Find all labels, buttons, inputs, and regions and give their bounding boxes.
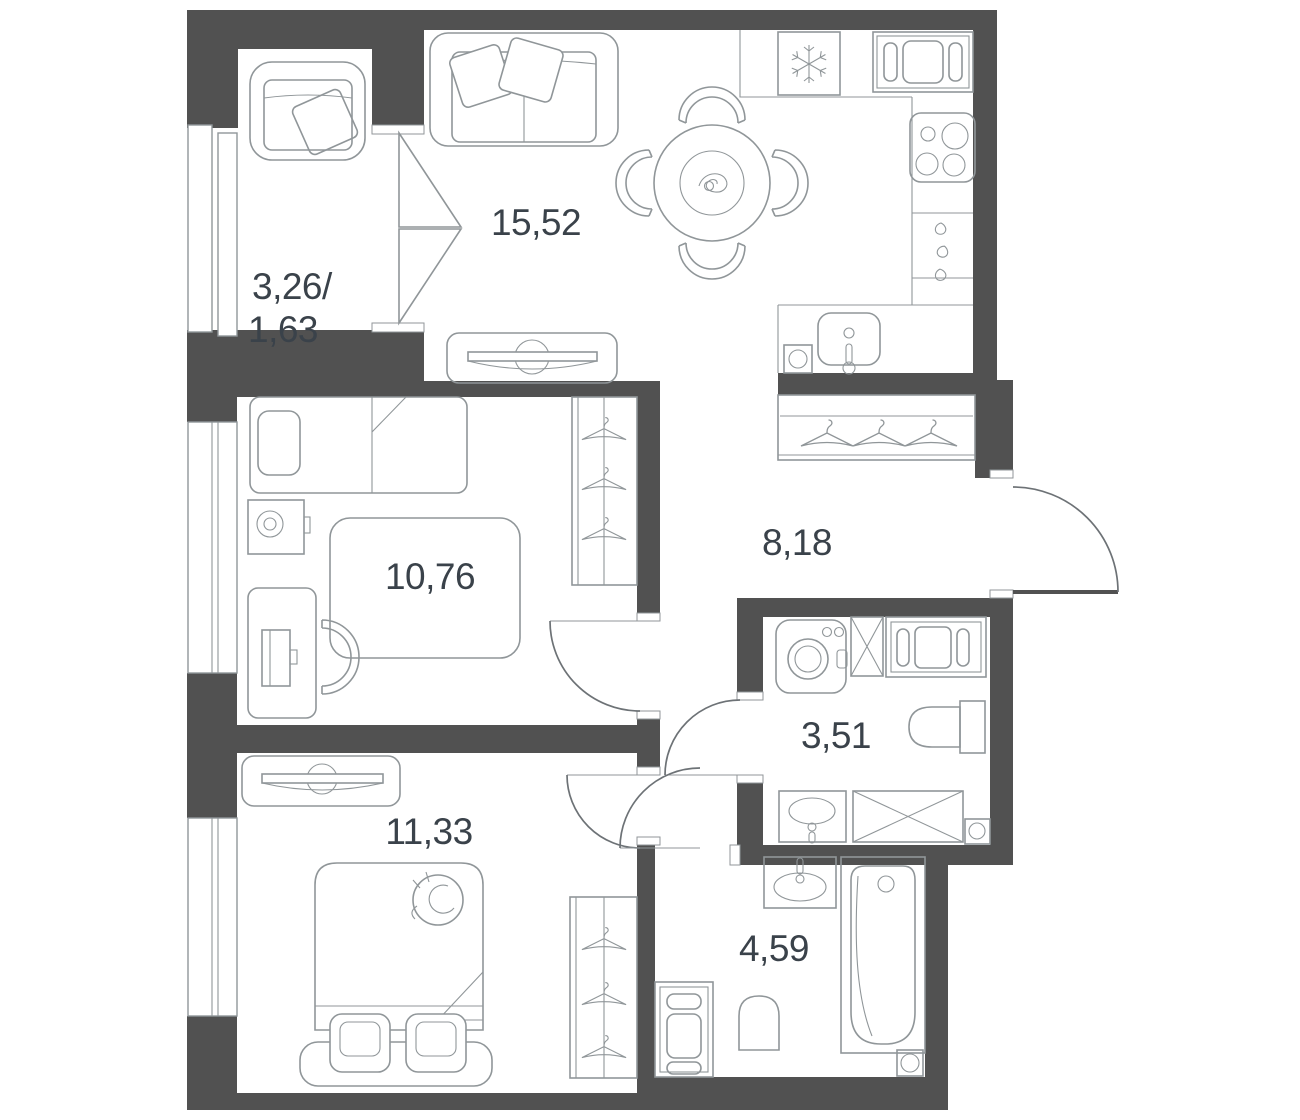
kitchen-sink [784, 313, 880, 374]
bedroom-1-window [188, 422, 237, 673]
bathroom-small-door [665, 700, 740, 775]
nightstand-lamp [248, 500, 310, 554]
vent-shaft [851, 617, 883, 676]
floor-drain-main-bath [897, 1050, 923, 1076]
oven [873, 32, 973, 92]
cabinet-column [655, 982, 713, 1077]
entrance-door [1013, 487, 1118, 592]
hallway-area-label: 8,18 [762, 522, 832, 563]
dryer [886, 617, 986, 677]
floor-plan-svg: 3,26/ 1,63 15,52 10,76 8,18 3,51 11,33 4… [0, 0, 1300, 1120]
snowflake-icon [790, 45, 828, 83]
bathtub [841, 857, 925, 1053]
bedroom-2-area-label: 11,33 [385, 811, 472, 852]
wardrobe-bedroom-2 [570, 897, 637, 1078]
toilet-main-bath [739, 996, 779, 1050]
bathroom-main-door [620, 768, 700, 848]
single-bed [250, 397, 467, 493]
hallway-wardrobe [778, 395, 975, 460]
floor-drain-small-bath [965, 819, 990, 844]
living-kitchen-area-label: 15,52 [491, 202, 581, 243]
kitchen-drawers [934, 223, 949, 281]
desk-chair [322, 620, 359, 694]
floor-plan: 3,26/ 1,63 15,52 10,76 8,18 3,51 11,33 4… [0, 0, 1300, 1120]
balcony-door [399, 133, 461, 323]
hob [910, 113, 975, 182]
bathroom-small-area-label: 3,51 [801, 715, 871, 756]
bedroom-1-area-label: 10,76 [385, 556, 475, 597]
bench-cushions [300, 1014, 492, 1086]
balcony-window [188, 125, 237, 336]
bedroom-1-door [550, 621, 640, 711]
fridge [778, 32, 840, 95]
dining-table [616, 87, 808, 279]
tv-stand-bedroom-2 [242, 756, 400, 806]
balcony-area-label-line2: 1,63 [248, 309, 318, 350]
washing-machine [776, 620, 847, 693]
bathroom-main-area-label: 4,59 [739, 928, 809, 969]
desk [248, 588, 359, 718]
monitor-icon [262, 630, 297, 686]
cat-icon [412, 872, 463, 925]
hanger-icon [801, 420, 853, 446]
balcony-area-label-line1: 3,26/ [252, 266, 333, 307]
hanger-icon [853, 420, 905, 446]
toilet-small-bath [909, 701, 985, 753]
double-bed [300, 863, 492, 1086]
bedroom-2-window [188, 818, 237, 1016]
sink-small-bath [779, 791, 846, 843]
tv-stand-living [447, 333, 617, 383]
wardrobe-bedroom-1 [572, 397, 637, 585]
walls [187, 10, 1013, 1110]
shower-tray [853, 791, 963, 842]
sofa [430, 33, 618, 146]
hanger-icon [905, 420, 957, 446]
kitchen-counter [740, 30, 973, 373]
balcony-armchair [250, 62, 365, 160]
